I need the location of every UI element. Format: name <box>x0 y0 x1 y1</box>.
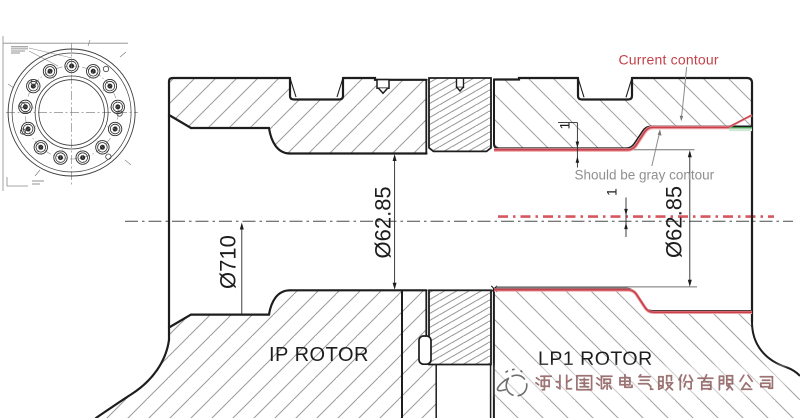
svg-text:Should be gray contour: Should be gray contour <box>575 168 715 183</box>
svg-text:Ø710: Ø710 <box>216 235 241 289</box>
svg-text:Current contour: Current contour <box>619 52 719 68</box>
svg-text:1: 1 <box>604 188 620 196</box>
svg-text:1: 1 <box>557 122 573 130</box>
svg-text:IP ROTOR: IP ROTOR <box>269 344 369 366</box>
svg-text:Ø62.85: Ø62.85 <box>662 186 687 258</box>
svg-text:Ø62.85: Ø62.85 <box>371 186 396 258</box>
